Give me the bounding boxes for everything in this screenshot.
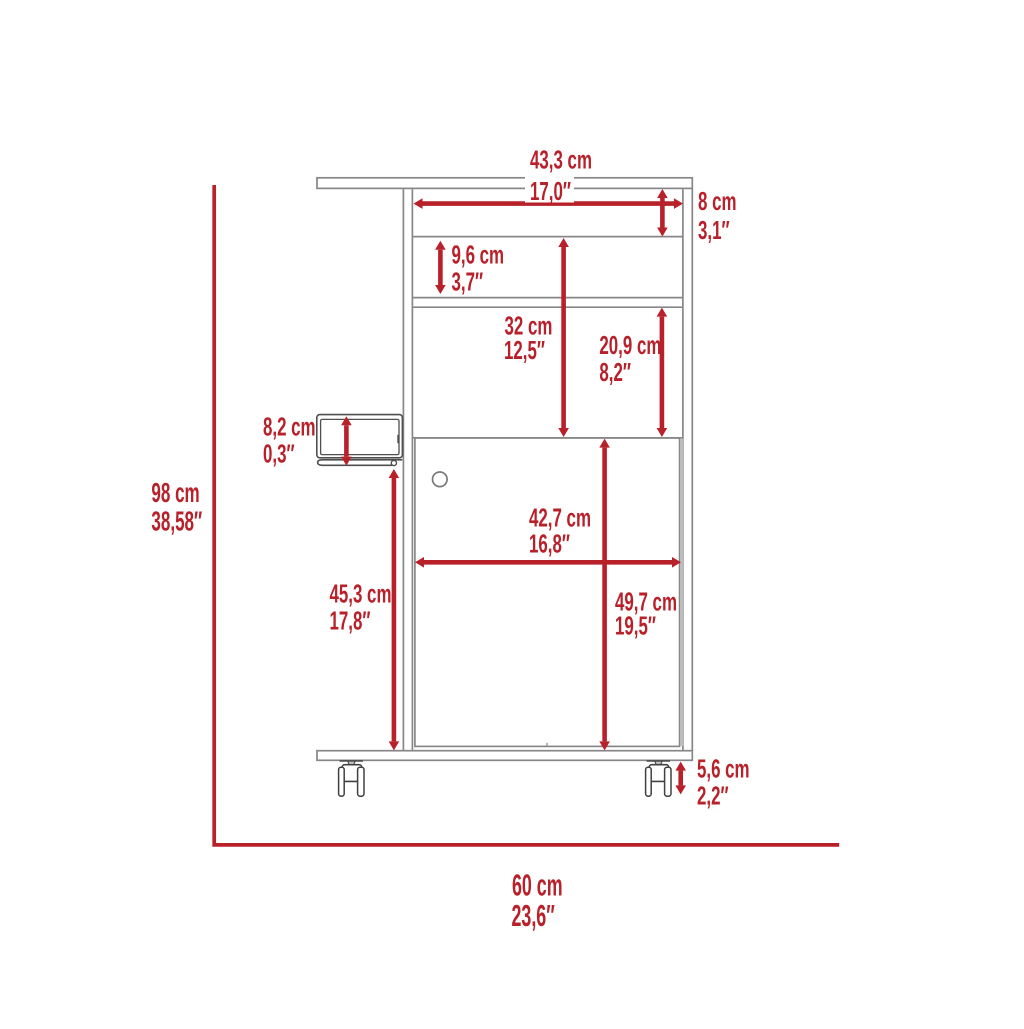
svg-text:8 cm: 8 cm (698, 186, 736, 216)
svg-text:98 cm: 98 cm (151, 477, 199, 508)
svg-text:3,7″: 3,7″ (452, 267, 484, 297)
svg-text:3,1″: 3,1″ (698, 215, 730, 245)
svg-text:0,3″: 0,3″ (263, 439, 295, 469)
svg-text:9,6 cm: 9,6 cm (452, 240, 505, 270)
svg-text:16,8″: 16,8″ (529, 529, 570, 559)
svg-text:12,5″: 12,5″ (504, 335, 545, 365)
svg-text:23,6″: 23,6″ (512, 899, 555, 933)
svg-text:5,6 cm: 5,6 cm (697, 754, 750, 784)
svg-text:17,8″: 17,8″ (330, 606, 371, 636)
svg-text:60 cm: 60 cm (512, 869, 563, 903)
svg-text:43,3 cm: 43,3 cm (530, 145, 592, 175)
svg-text:17,0″: 17,0″ (530, 176, 571, 206)
svg-text:8,2″: 8,2″ (599, 357, 631, 387)
svg-text:45,3 cm: 45,3 cm (330, 579, 392, 609)
svg-text:19,5″: 19,5″ (615, 611, 656, 641)
svg-text:2,2″: 2,2″ (697, 781, 729, 811)
svg-text:8,2 cm: 8,2 cm (263, 412, 316, 442)
svg-text:20,9 cm: 20,9 cm (599, 330, 661, 360)
svg-text:38,58″: 38,58″ (151, 505, 202, 536)
